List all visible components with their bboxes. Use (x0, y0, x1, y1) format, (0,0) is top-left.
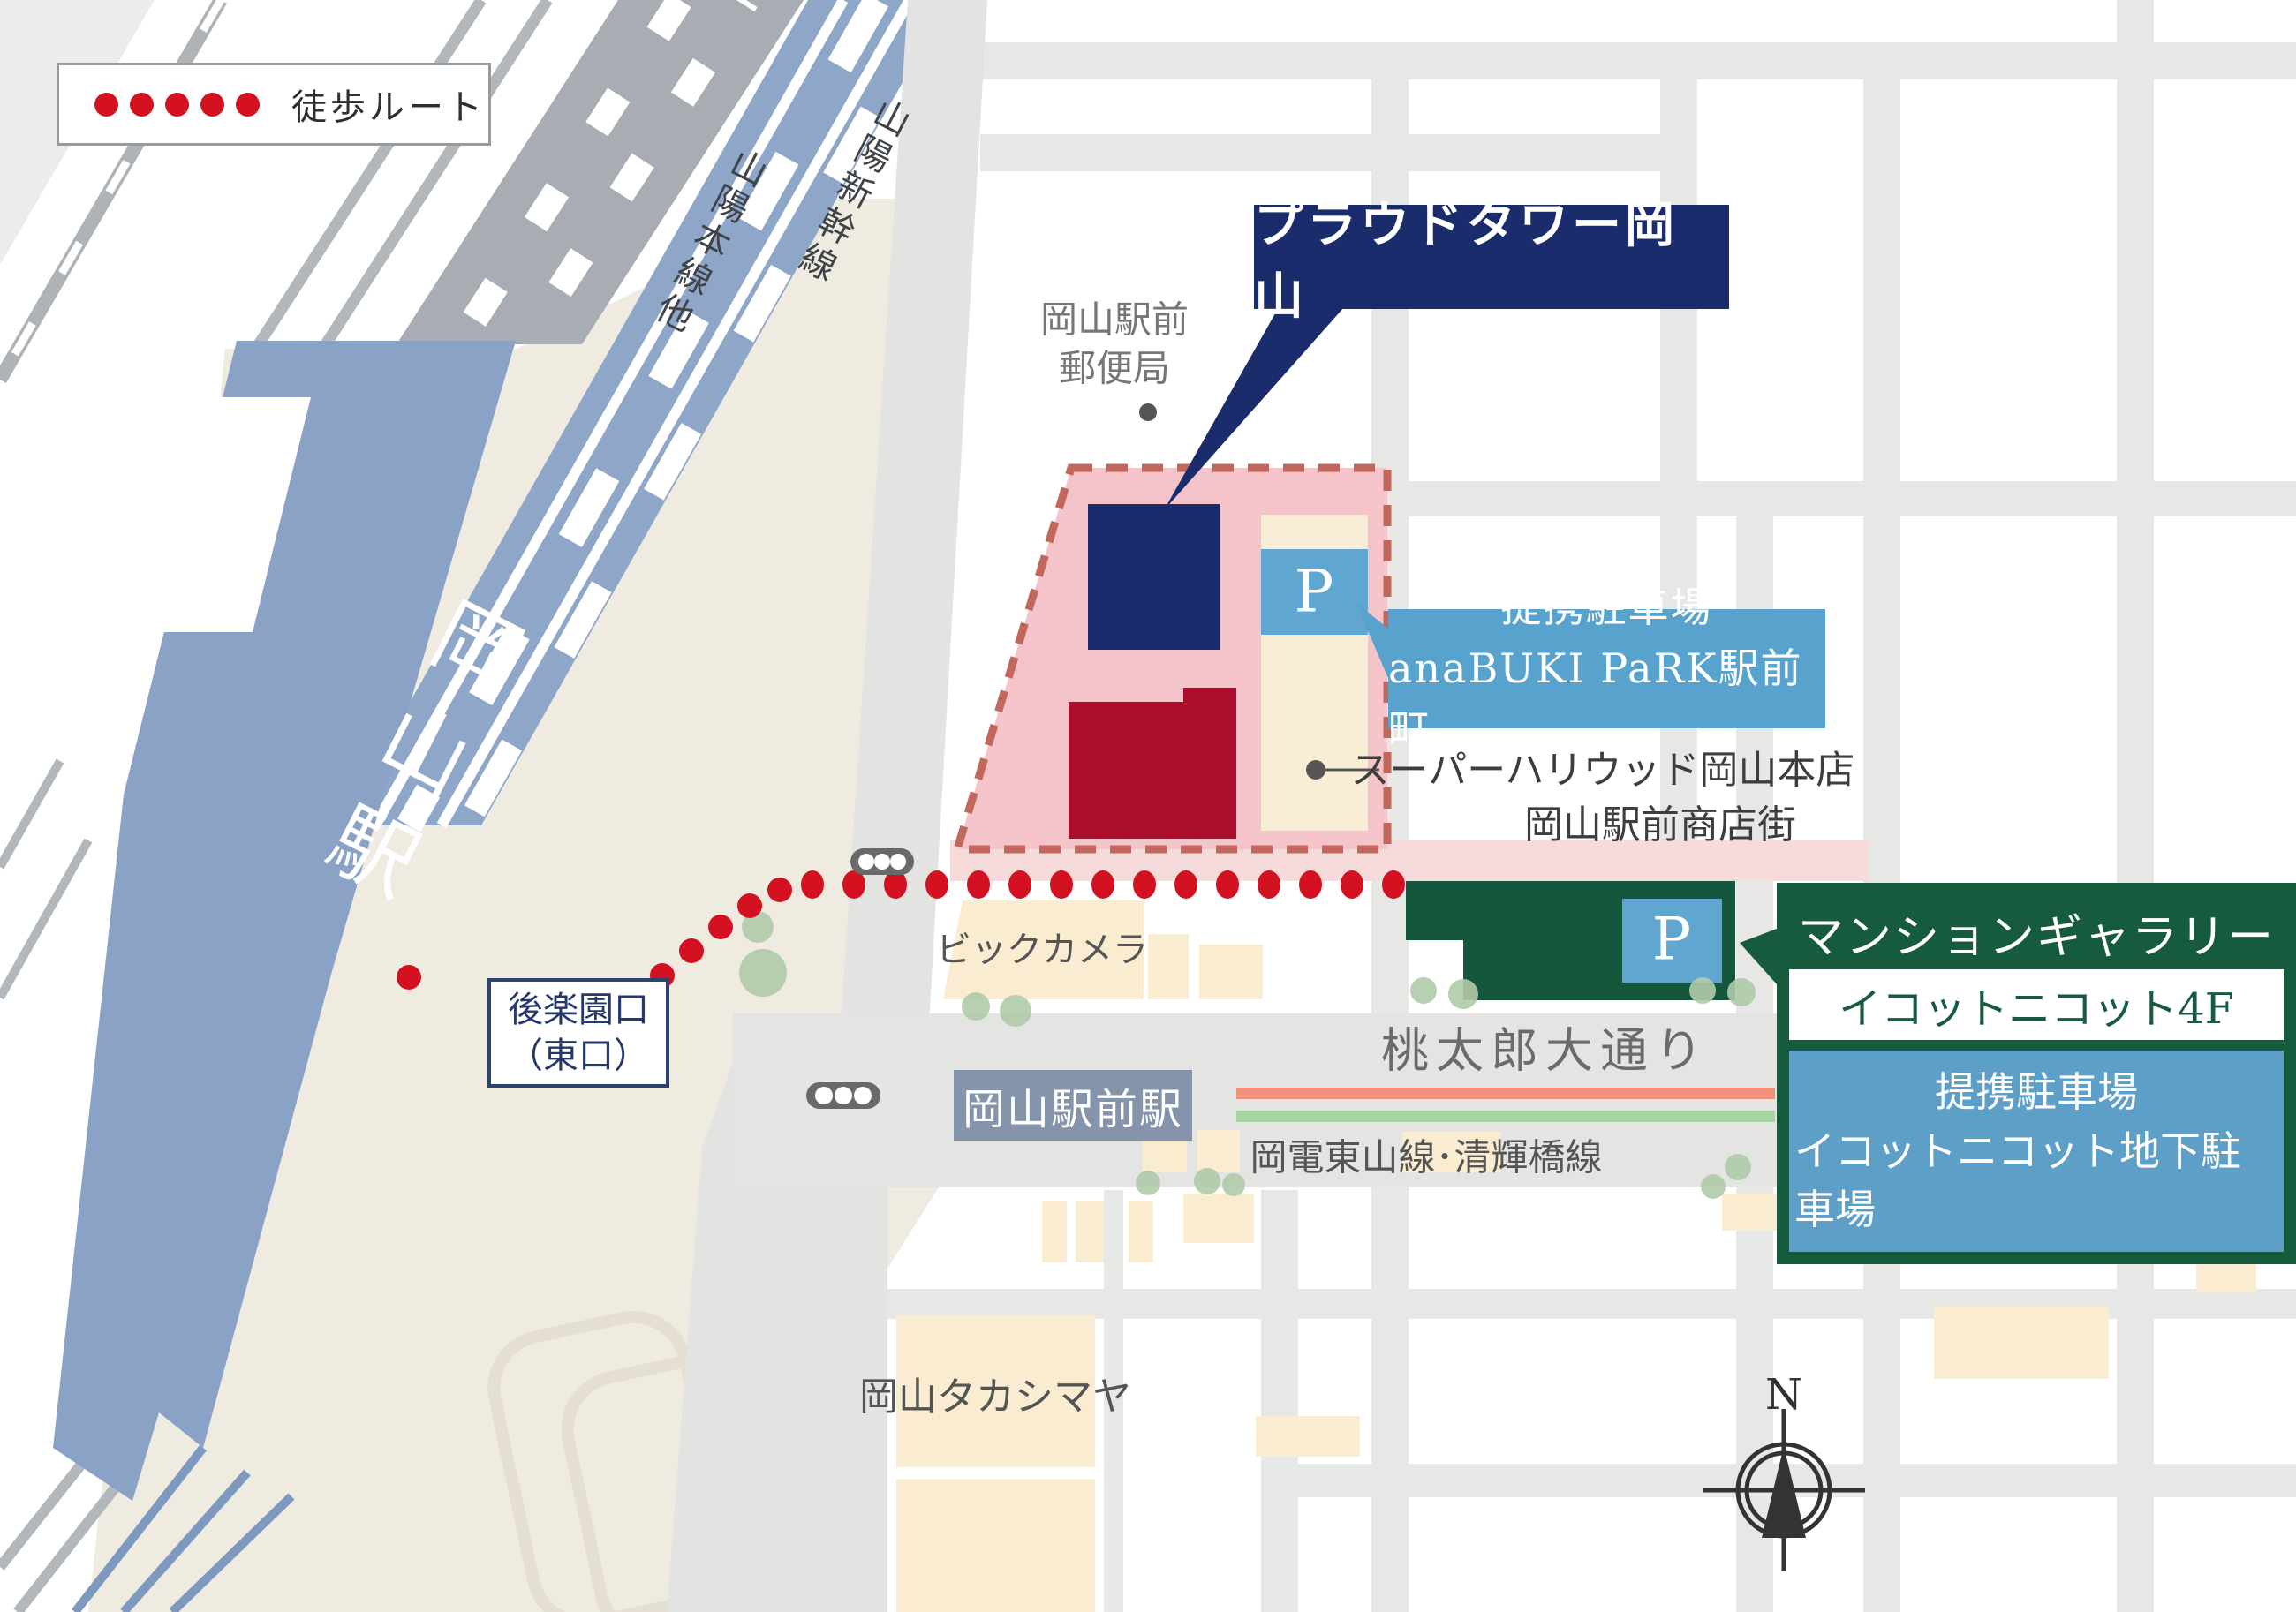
legend-label: 徒歩ルート (291, 79, 486, 130)
bic-camera-label: ビックカメラ (936, 921, 1148, 972)
tram-lines-label: 岡電東山線･清輝橋線 (1250, 1128, 1602, 1182)
gallery-p-label: P (1652, 906, 1691, 974)
okayama-access-map: 徒歩ルート 山陽本線他 山陽新幹線 岡山駅 岡山駅前 郵便局 プラウドタワー岡山… (0, 0, 2296, 1612)
tram-line-salmon (1236, 1088, 1775, 1099)
gallery-callout: マンションギャラリー イコットニコット4F 提携駐車場 イコットニコット地下駐車… (1777, 883, 2296, 1264)
site-building-red (1069, 688, 1236, 839)
gallery-location: イコットニコット4F (1789, 969, 2284, 1040)
compass-icon (1703, 1409, 1865, 1571)
proud-tower-building (1088, 504, 1220, 650)
takashimaya-label: 岡山タカシマヤ (859, 1365, 1131, 1421)
tram-line-green (1236, 1111, 1775, 1122)
gallery-title: マンションギャラリー (1789, 895, 2284, 969)
anabuki-p-label: P (1295, 558, 1333, 626)
ekimae-station-label: 岡山駅前駅 (954, 1070, 1192, 1141)
supermarket-label: スーパーハリウッド岡山本店 (1351, 738, 1855, 795)
post-office-dot (1139, 403, 1157, 421)
anabuki-parking-callout: 提携駐車場 anaBUKI PaRK駅前町 (1388, 609, 1825, 728)
momotaro-avenue-label: 桃太郎大通り (1381, 1012, 1710, 1081)
post-office-label: 岡山駅前 郵便局 (1040, 296, 1189, 392)
legend-walk-route: 徒歩ルート (57, 63, 491, 146)
korakuen-exit-callout: 後楽園口 （東口） (487, 978, 669, 1088)
site-block (957, 468, 1387, 849)
shopping-street-label: 岡山駅前商店街 (1524, 793, 1796, 849)
legend-route-dots-icon (94, 93, 260, 117)
proud-tower-callout: プラウドタワー岡山 (1254, 205, 1729, 309)
compass-north-label: N (1765, 1370, 1802, 1420)
gallery-parking-info: 提携駐車場 イコットニコット地下駐車場 (1789, 1051, 2284, 1252)
